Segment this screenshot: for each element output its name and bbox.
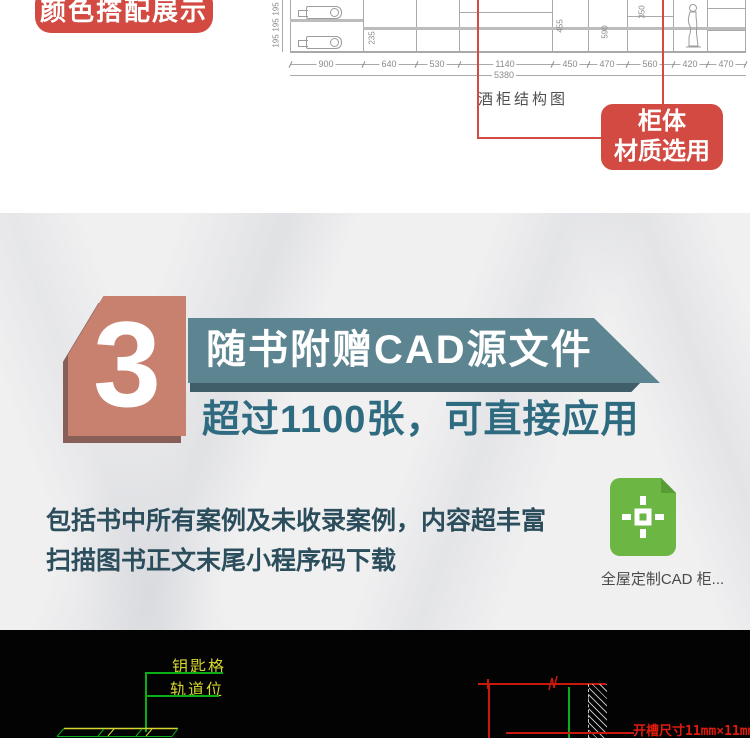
cad-shelf-line: [707, 30, 745, 31]
cad-dim-tick: [744, 61, 748, 68]
callout-leader-line: [145, 672, 147, 732]
cad-inner-dim: 590: [602, 25, 610, 38]
cad-line: [673, 0, 674, 52]
step-number-block: 3: [68, 296, 186, 436]
break-symbol-icon: [545, 676, 561, 692]
cad-dimension-label: 470: [597, 59, 616, 69]
cad-red-line: [488, 684, 490, 738]
rail-drawing: [56, 727, 180, 738]
cad-dimension-label: 450: [560, 59, 579, 69]
cad-total-dimension: 5380: [492, 70, 516, 80]
cad-line: [290, 0, 291, 52]
cad-green-line: [568, 687, 570, 738]
cad-line: [588, 0, 589, 52]
description-text: 包括书中所有案例及未收录案例，内容超丰富 扫描图书正文末尾小程序码下载: [46, 501, 546, 581]
callout-underline: [145, 695, 219, 697]
cad-dimension-label: 1140: [493, 59, 516, 69]
cad-inner-dim: 455: [557, 19, 565, 32]
cad-dimension-label: 420: [680, 59, 699, 69]
cad-bottom-line: [290, 51, 746, 53]
color-match-badge: 颜色搭配展示: [35, 0, 213, 33]
cad-inner-dim: 235: [369, 31, 377, 44]
material-select-label: 柜体 材质选用: [601, 104, 723, 170]
cad-side-dim: 195: [273, 2, 281, 15]
feature-banner: 随书附赠CAD源文件: [188, 318, 660, 383]
section-cad-giveaway: 随书附赠CAD源文件 3 超过1100张，可直接应用 包括书中所有案例及未收录案…: [0, 213, 750, 630]
material-label-line2: 材质选用: [614, 137, 710, 167]
cad-side-dim: 195: [273, 34, 281, 47]
cad-dimension-label: 470: [716, 59, 735, 69]
cad-dimension-label: 900: [316, 59, 335, 69]
crosshair-icon: [622, 496, 664, 538]
cad-red-line: [478, 683, 606, 685]
cad-dim-line: [290, 64, 746, 65]
cad-side-dim: 195: [273, 18, 281, 31]
cad-shelf-line: [459, 12, 552, 13]
color-match-badge-label: 颜色搭配展示: [40, 0, 208, 28]
cad-red-line: [506, 732, 634, 734]
section-color-matching: 颜色搭配展示: [0, 0, 750, 213]
cad-line: [363, 0, 364, 52]
material-label-line1: 柜体: [638, 107, 686, 137]
cad-inner-dim: 350: [639, 5, 647, 18]
description-line-1: 包括书中所有案例及未收录案例，内容超丰富: [46, 501, 546, 541]
annotation-line: [477, 0, 479, 139]
cad-shelf-line: [707, 8, 745, 9]
annotation-line: [477, 137, 603, 139]
wine-bottle-icon: [306, 36, 342, 49]
file-corner-fold: [661, 478, 676, 493]
section-blueprint: 钥匙格 轨道位 开槽尺寸11mm×11mm: [0, 630, 750, 738]
cad-caption: 酒柜结构图: [478, 88, 568, 109]
hatch-column: [588, 684, 607, 738]
product-detail-page: 颜色搭配展示: [0, 0, 750, 738]
cad-line: [459, 0, 460, 52]
cad-dimension-label: 640: [379, 59, 398, 69]
cad-line: [416, 0, 417, 52]
annotation-line: [662, 0, 664, 106]
step-number: 3: [93, 303, 161, 425]
description-line-2: 扫描图书正文末尾小程序码下载: [46, 541, 546, 581]
callout-underline: [145, 672, 223, 674]
banner-title: 随书附赠CAD源文件: [188, 318, 660, 383]
cad-line: [627, 0, 628, 52]
cad-shelf-line: [627, 16, 673, 17]
cad-shelf-line: [290, 19, 363, 22]
cad-dimension-label: 530: [427, 59, 446, 69]
banner-subtitle: 超过1100张，可直接应用: [202, 388, 639, 443]
file-caption: 全屋定制CAD 柜...: [575, 568, 750, 589]
cad-dim-line: [282, 0, 283, 52]
wine-bottle-icon: [306, 6, 342, 19]
slot-size-note: 开槽尺寸11mm×11mm: [633, 720, 750, 738]
cad-dim-line: [290, 75, 746, 76]
cad-line: [745, 0, 746, 52]
step-number-shape: 3: [68, 296, 186, 436]
cad-line: [552, 0, 553, 52]
cad-dimension-label: 560: [640, 59, 659, 69]
statue-icon: [681, 3, 705, 49]
